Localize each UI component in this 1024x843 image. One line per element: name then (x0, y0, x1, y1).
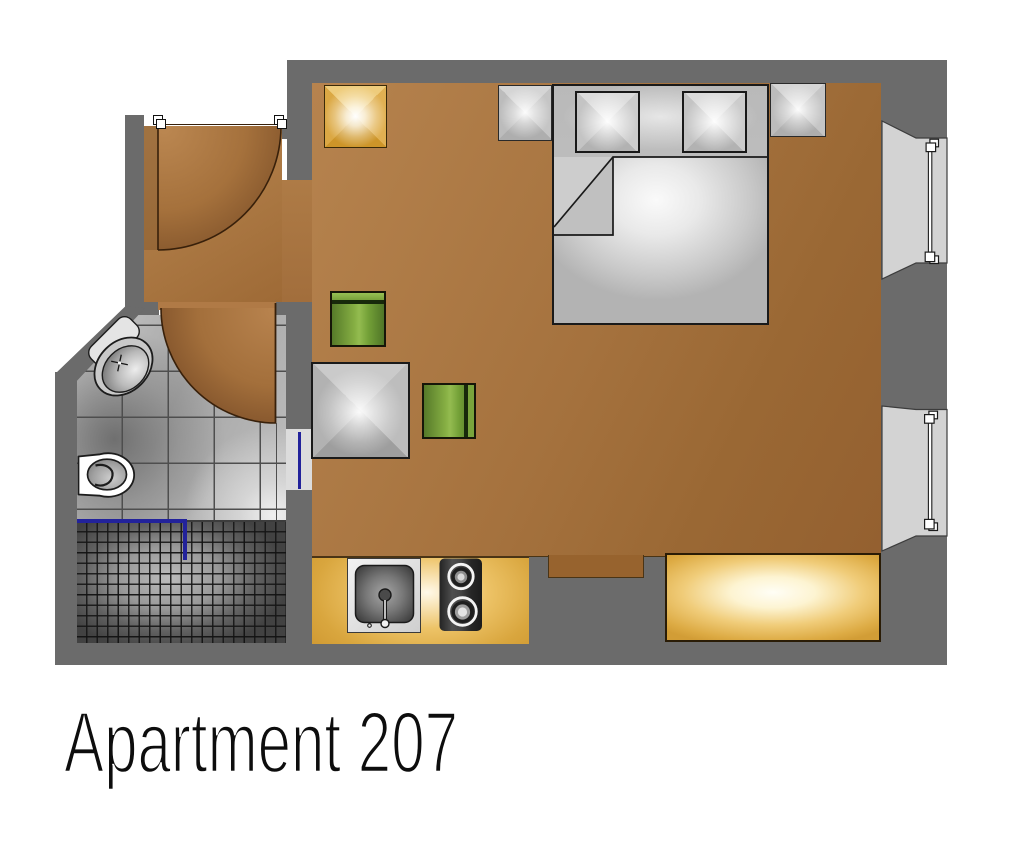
svg-text:Apartment 207: Apartment 207 (64, 695, 458, 791)
